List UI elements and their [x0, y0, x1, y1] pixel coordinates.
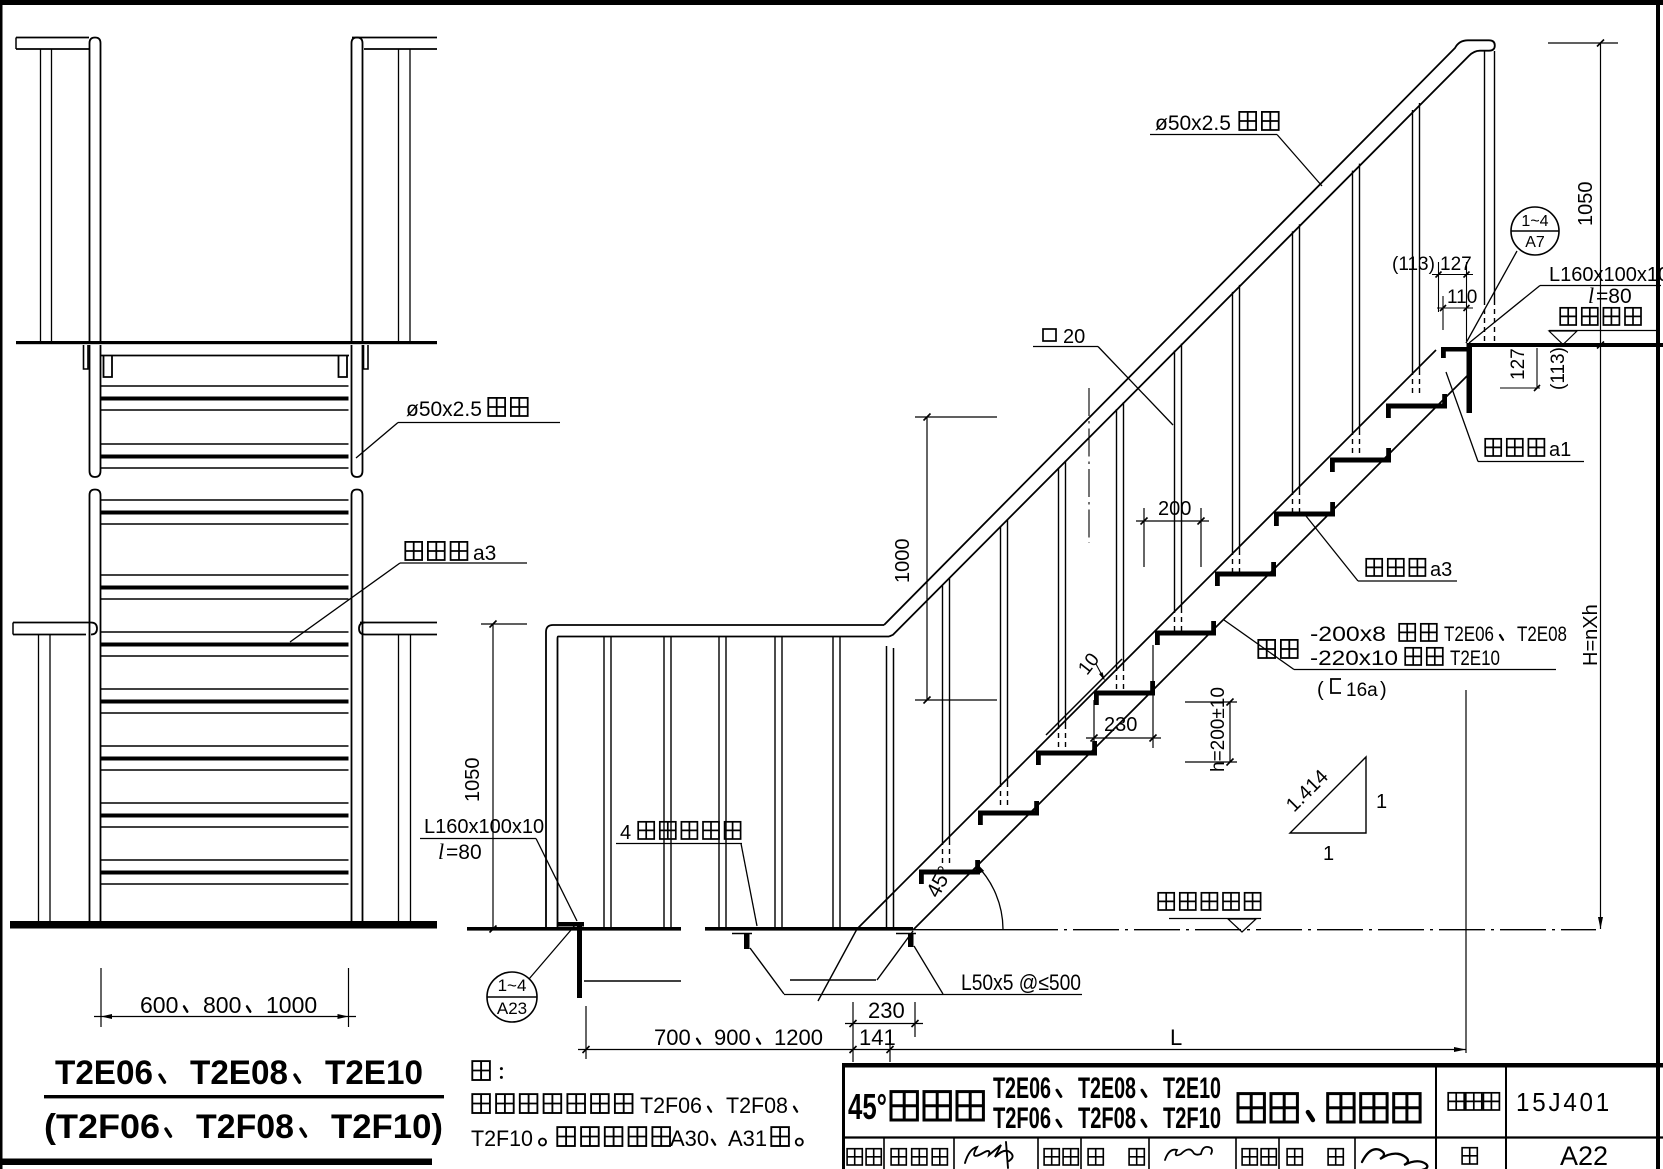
svg-text:900: 900: [714, 1025, 751, 1050]
svg-text:l: l: [1588, 283, 1594, 308]
svg-text:L160x100x10: L160x100x10: [1549, 264, 1663, 286]
svg-text:127: 127: [1508, 348, 1529, 380]
svg-text:T2F10: T2F10: [471, 1126, 533, 1151]
svg-text:1000: 1000: [266, 992, 317, 1018]
svg-text:110: 110: [1447, 287, 1477, 308]
svg-text:T2F08: T2F08: [726, 1093, 788, 1118]
svg-text:A31: A31: [728, 1126, 767, 1151]
svg-text:(T2F06: (T2F06: [44, 1108, 160, 1146]
svg-text:1~4: 1~4: [1521, 213, 1548, 230]
svg-text:230: 230: [1104, 714, 1137, 736]
svg-text:1: 1: [1376, 791, 1387, 813]
svg-text:T2F08: T2F08: [1078, 1102, 1136, 1135]
svg-text:T2E10: T2E10: [325, 1054, 423, 1092]
svg-text:A7: A7: [1525, 234, 1545, 251]
svg-text:15J401: 15J401: [1516, 1087, 1612, 1117]
svg-text:200: 200: [1158, 498, 1191, 520]
svg-text:700: 700: [654, 1025, 691, 1050]
svg-text:1: 1: [1323, 843, 1334, 865]
svg-text:): ): [1380, 679, 1387, 701]
svg-text:(113): (113): [1392, 254, 1435, 275]
svg-text:T2E10: T2E10: [1450, 647, 1500, 670]
svg-text:(: (: [1317, 679, 1324, 701]
svg-text:T2F06: T2F06: [640, 1093, 702, 1118]
svg-text:H=nXh: H=nXh: [1580, 604, 1602, 666]
svg-text:h=200±10: h=200±10: [1208, 687, 1229, 772]
svg-text:1050: 1050: [462, 758, 484, 803]
svg-text:T2E08: T2E08: [190, 1054, 288, 1092]
svg-text:800: 800: [203, 992, 241, 1018]
svg-text:1000: 1000: [892, 539, 914, 584]
svg-text:4: 4: [620, 822, 637, 844]
svg-text:600: 600: [140, 992, 178, 1018]
svg-text:T2E10: T2E10: [1163, 1072, 1221, 1105]
svg-text:230: 230: [868, 998, 905, 1023]
svg-text:T2F10): T2F10): [331, 1108, 443, 1146]
svg-text:a1: a1: [1549, 439, 1571, 461]
svg-text:T2F06: T2F06: [993, 1102, 1051, 1135]
svg-text:127: 127: [1440, 254, 1472, 275]
svg-text:ø50x2.5: ø50x2.5: [1155, 112, 1231, 135]
svg-text:a3: a3: [473, 542, 496, 565]
svg-text:A23: A23: [497, 999, 527, 1018]
svg-text:1200: 1200: [774, 1025, 823, 1050]
svg-text:1~4: 1~4: [498, 976, 527, 995]
svg-text:45°: 45°: [848, 1086, 887, 1127]
svg-text:ø50x2.5: ø50x2.5: [406, 398, 482, 421]
svg-text:=80: =80: [1596, 285, 1632, 308]
svg-text:T2E06: T2E06: [1444, 623, 1494, 646]
svg-text:141: 141: [859, 1025, 896, 1050]
svg-text:T2E08: T2E08: [1078, 1072, 1136, 1105]
svg-text:T2F08: T2F08: [196, 1108, 294, 1146]
svg-text:T2F10: T2F10: [1163, 1102, 1221, 1135]
svg-text:a3: a3: [1430, 559, 1452, 581]
svg-text:T2E06: T2E06: [993, 1072, 1051, 1105]
svg-text:L50x5 @≤500: L50x5 @≤500: [961, 970, 1081, 995]
svg-text:L160x100x10: L160x100x10: [424, 816, 544, 838]
svg-text:-220x10: -220x10: [1310, 647, 1398, 670]
svg-text:l: l: [438, 839, 444, 864]
svg-text:A22: A22: [1560, 1141, 1608, 1169]
svg-text:(113): (113): [1548, 347, 1569, 390]
svg-text:1050: 1050: [1575, 182, 1597, 227]
svg-text:L: L: [1170, 1025, 1182, 1050]
svg-text:=80: =80: [446, 841, 482, 864]
svg-text:A30: A30: [670, 1126, 709, 1151]
svg-text:-200x8: -200x8: [1310, 623, 1386, 646]
svg-text:T2E06: T2E06: [55, 1054, 153, 1092]
svg-text:T2E08: T2E08: [1517, 623, 1567, 646]
svg-text:16a: 16a: [1346, 680, 1378, 701]
svg-text:20: 20: [1063, 326, 1085, 348]
